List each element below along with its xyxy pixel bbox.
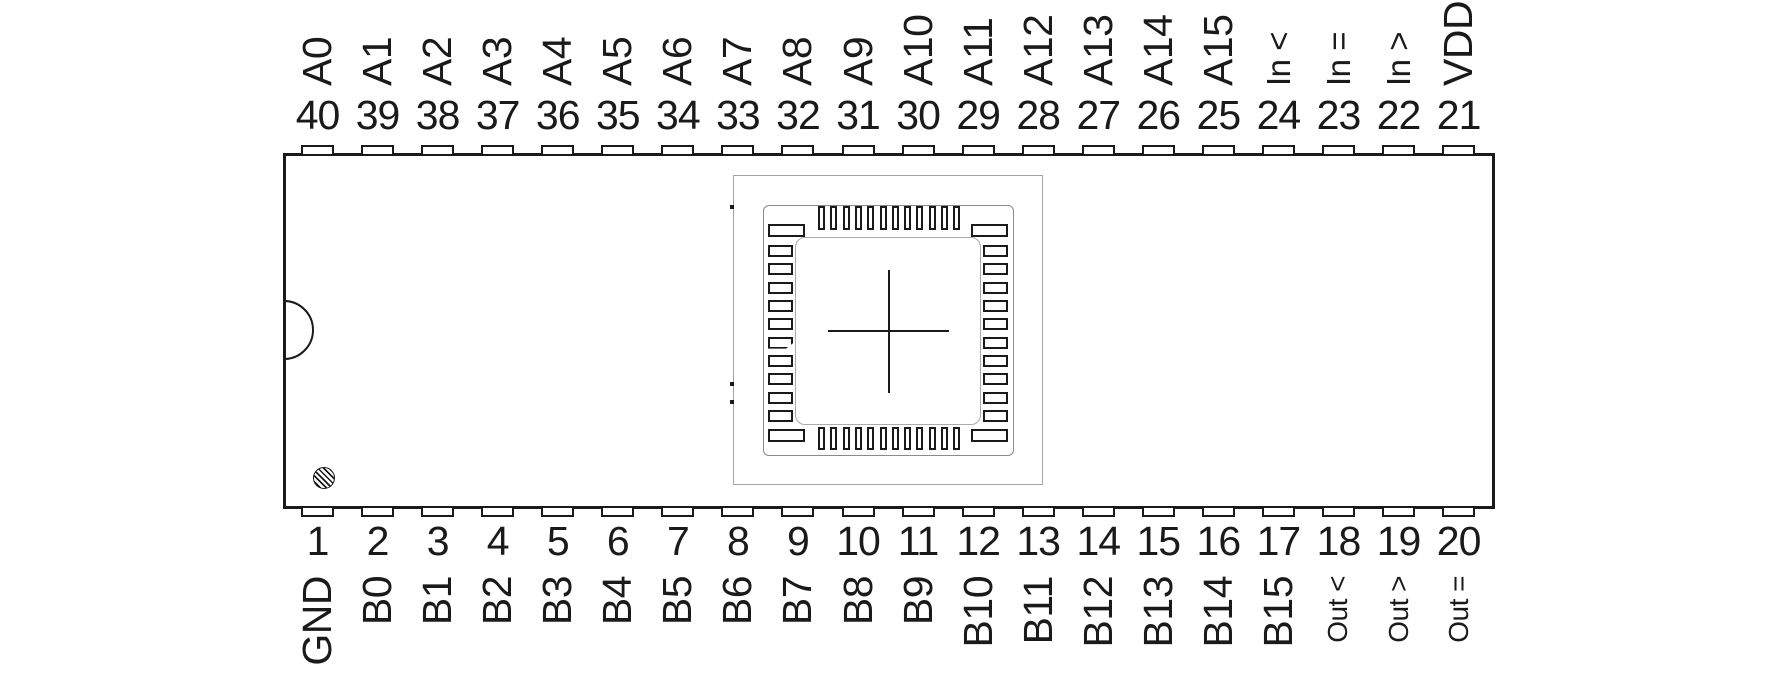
alignment-tick — [730, 205, 734, 209]
pin-number: 8 — [706, 521, 770, 562]
pin-label: A4 — [537, 37, 578, 86]
qfn-pad — [768, 245, 793, 257]
pin-number: 24 — [1246, 95, 1310, 136]
pin-number: 28 — [1006, 95, 1070, 136]
qfn-pad — [983, 318, 1008, 330]
qfn-pad — [983, 300, 1008, 312]
pin-label: VDD — [1438, 1, 1479, 86]
qfn-pad — [941, 206, 948, 230]
dip-pin — [541, 145, 574, 154]
qfn-pad — [983, 282, 1008, 294]
dip-pin — [962, 145, 995, 154]
pin-label: A14 — [1138, 15, 1179, 86]
pin-number: 25 — [1186, 95, 1250, 136]
alignment-tick — [730, 400, 734, 404]
pin-number: 7 — [646, 521, 710, 562]
qfn-pad — [929, 427, 936, 450]
dip-pin — [842, 145, 875, 154]
pin-number: 5 — [526, 521, 590, 562]
dip-pin — [1142, 508, 1175, 517]
qfn-pad — [768, 318, 793, 330]
pin1-marker-icon — [313, 467, 335, 489]
pin-number: 39 — [346, 95, 410, 136]
pin-label: B4 — [597, 576, 638, 625]
qfn-pad — [818, 206, 825, 230]
qfn-pad — [953, 427, 960, 450]
qfn-pad — [843, 427, 850, 450]
pin-label: B7 — [777, 576, 818, 625]
qfn-pad — [768, 224, 805, 237]
dip-pin — [421, 145, 454, 154]
qfn-pad — [768, 392, 793, 404]
dip-pin — [1022, 145, 1055, 154]
qfn-pad — [916, 206, 923, 230]
pin-number: 40 — [286, 95, 350, 136]
pin-label: Out < — [1324, 576, 1352, 643]
dip-pin — [1262, 145, 1295, 154]
pin-number: 17 — [1246, 521, 1310, 562]
qfn-pad — [953, 206, 960, 230]
pin-label: B14 — [1198, 576, 1239, 647]
qfn-pad — [929, 206, 936, 230]
qfn-pad — [983, 410, 1008, 422]
pin-number: 38 — [406, 95, 470, 136]
pin-number: 34 — [646, 95, 710, 136]
dip-pin — [1382, 145, 1415, 154]
dip-pin — [481, 145, 514, 154]
qfn-pad — [941, 427, 948, 450]
qfn-pad — [983, 373, 1008, 385]
pin-label: B10 — [958, 576, 999, 647]
pin-number: 23 — [1306, 95, 1370, 136]
dip-pin — [1202, 145, 1235, 154]
pin-label: A3 — [477, 37, 518, 86]
dip-pin — [1322, 145, 1355, 154]
qfn-pad — [768, 373, 793, 385]
pin-number: 33 — [706, 95, 770, 136]
dip-pin — [781, 145, 814, 154]
dip-pin — [842, 508, 875, 517]
pin-label: In > — [1382, 32, 1415, 86]
pin-number: 22 — [1367, 95, 1431, 136]
pin-number: 31 — [826, 95, 890, 136]
pin-number: 15 — [1126, 521, 1190, 562]
pin-number: 10 — [826, 521, 890, 562]
pin-number: 4 — [466, 521, 530, 562]
qfn-pad — [971, 429, 1008, 442]
pin-label: B2 — [477, 576, 518, 625]
dip-pin — [601, 145, 634, 154]
pin-number: 29 — [946, 95, 1010, 136]
qfn-pad — [768, 300, 793, 312]
dip-pin — [902, 508, 935, 517]
dip-pin — [1202, 508, 1235, 517]
qfn-pad — [830, 206, 837, 230]
pinout-diagram: 40A039A138A237A336A435A534A633A732A831A9… — [0, 0, 1788, 688]
dip-pin — [721, 145, 754, 154]
pin-label: B11 — [1018, 576, 1059, 644]
qfn-pad — [983, 392, 1008, 404]
qfn-pad — [843, 206, 850, 230]
dip-pin — [301, 145, 334, 154]
qfn-pad — [768, 429, 805, 442]
dip-pin — [601, 508, 634, 517]
dip-pin — [421, 508, 454, 517]
pin-label: A0 — [297, 37, 338, 86]
index-notch-icon — [286, 299, 320, 363]
pin-label: A12 — [1018, 15, 1059, 86]
qfn-pad — [867, 206, 874, 230]
pin-label: A13 — [1078, 15, 1119, 86]
pin-label: B3 — [537, 576, 578, 625]
pin-label: A2 — [417, 37, 458, 86]
pin-label: B9 — [898, 576, 939, 625]
qfn-pad — [830, 427, 837, 450]
dip-pin — [721, 508, 754, 517]
dip-pin — [1442, 508, 1475, 517]
pin-number: 37 — [466, 95, 530, 136]
qfn-pad — [855, 206, 862, 230]
pin-number: 18 — [1306, 521, 1370, 562]
pin-label: A8 — [777, 37, 818, 86]
crosshair-icon — [888, 270, 890, 393]
pin-number: 2 — [346, 521, 410, 562]
qfn-pad — [855, 427, 862, 450]
pin-number: 30 — [886, 95, 950, 136]
qfn-pad — [904, 206, 911, 230]
pin-label: B13 — [1138, 576, 1179, 647]
pin-number: 20 — [1427, 521, 1491, 562]
pin-label: A9 — [838, 37, 879, 86]
dip-pin — [781, 508, 814, 517]
pin-number: 32 — [766, 95, 830, 136]
pin-label: B12 — [1078, 576, 1119, 647]
dip-pin — [481, 508, 514, 517]
pin-label: A10 — [898, 15, 939, 86]
pin-label: A1 — [357, 37, 398, 86]
pin-label: A11 — [958, 18, 999, 86]
qfn-pad — [983, 337, 1008, 349]
pin-label: A7 — [717, 37, 758, 86]
pin-number: 9 — [766, 521, 830, 562]
pin-number: 36 — [526, 95, 590, 136]
pin-label: B15 — [1258, 576, 1299, 647]
qfn-pad — [983, 263, 1008, 275]
dip-pin — [1082, 145, 1115, 154]
qfn-pad — [768, 263, 793, 275]
pin-label: Out = — [1445, 576, 1473, 643]
pin-label: A5 — [597, 37, 638, 86]
pin-number: 27 — [1066, 95, 1130, 136]
pin-label: In = — [1322, 32, 1355, 86]
pin-number: 12 — [946, 521, 1010, 562]
qfn-pad — [768, 355, 793, 367]
qfn-pad — [983, 355, 1008, 367]
qfn-pad — [768, 410, 793, 422]
pin-label: B8 — [838, 576, 879, 625]
qfn-pad — [892, 427, 899, 450]
pin-number: 19 — [1367, 521, 1431, 562]
pin-label: Out > — [1385, 576, 1413, 643]
dip-pin — [361, 508, 394, 517]
dip-pin — [962, 508, 995, 517]
qfn-pad — [904, 427, 911, 450]
qfn-pad — [892, 206, 899, 230]
dip-pin — [1022, 508, 1055, 517]
pin-label: GND — [297, 576, 338, 666]
qfn-pad — [916, 427, 923, 450]
pin-number: 11 — [886, 521, 950, 562]
dip-pin — [541, 508, 574, 517]
pin-number: 35 — [586, 95, 650, 136]
dip-pin — [301, 508, 334, 517]
pin-number: 13 — [1006, 521, 1070, 562]
dip-pin — [1142, 145, 1175, 154]
pin-number: 21 — [1427, 95, 1491, 136]
dip-pin — [1382, 508, 1415, 517]
dip-pin — [1262, 508, 1295, 517]
pin-label: B0 — [357, 576, 398, 625]
qfn-pad — [880, 427, 887, 450]
pin-label: B5 — [657, 576, 698, 625]
pin-label: A15 — [1198, 15, 1239, 86]
alignment-tick — [730, 382, 734, 386]
pin-number: 16 — [1186, 521, 1250, 562]
qfn-pad — [971, 224, 1008, 237]
dip-pin — [361, 145, 394, 154]
pin-number: 26 — [1126, 95, 1190, 136]
dip-pin — [1322, 508, 1355, 517]
qfn-pad — [867, 427, 874, 450]
dip-pin — [661, 508, 694, 517]
dip-pin — [1442, 145, 1475, 154]
qfn-pad — [768, 282, 793, 294]
pin-label: B1 — [417, 576, 458, 625]
dip-pin — [661, 145, 694, 154]
qfn-pad — [880, 206, 887, 230]
pin-label: A6 — [657, 37, 698, 86]
pin-number: 6 — [586, 521, 650, 562]
pin-number: 1 — [286, 521, 350, 562]
pin-number: 14 — [1066, 521, 1130, 562]
dip-pin — [1082, 508, 1115, 517]
qfn-pad — [983, 245, 1008, 257]
qfn-pad — [818, 427, 825, 450]
pin-label: In < — [1262, 32, 1295, 86]
dip-pin — [902, 145, 935, 154]
pin-label: B6 — [717, 576, 758, 625]
pin-number: 3 — [406, 521, 470, 562]
